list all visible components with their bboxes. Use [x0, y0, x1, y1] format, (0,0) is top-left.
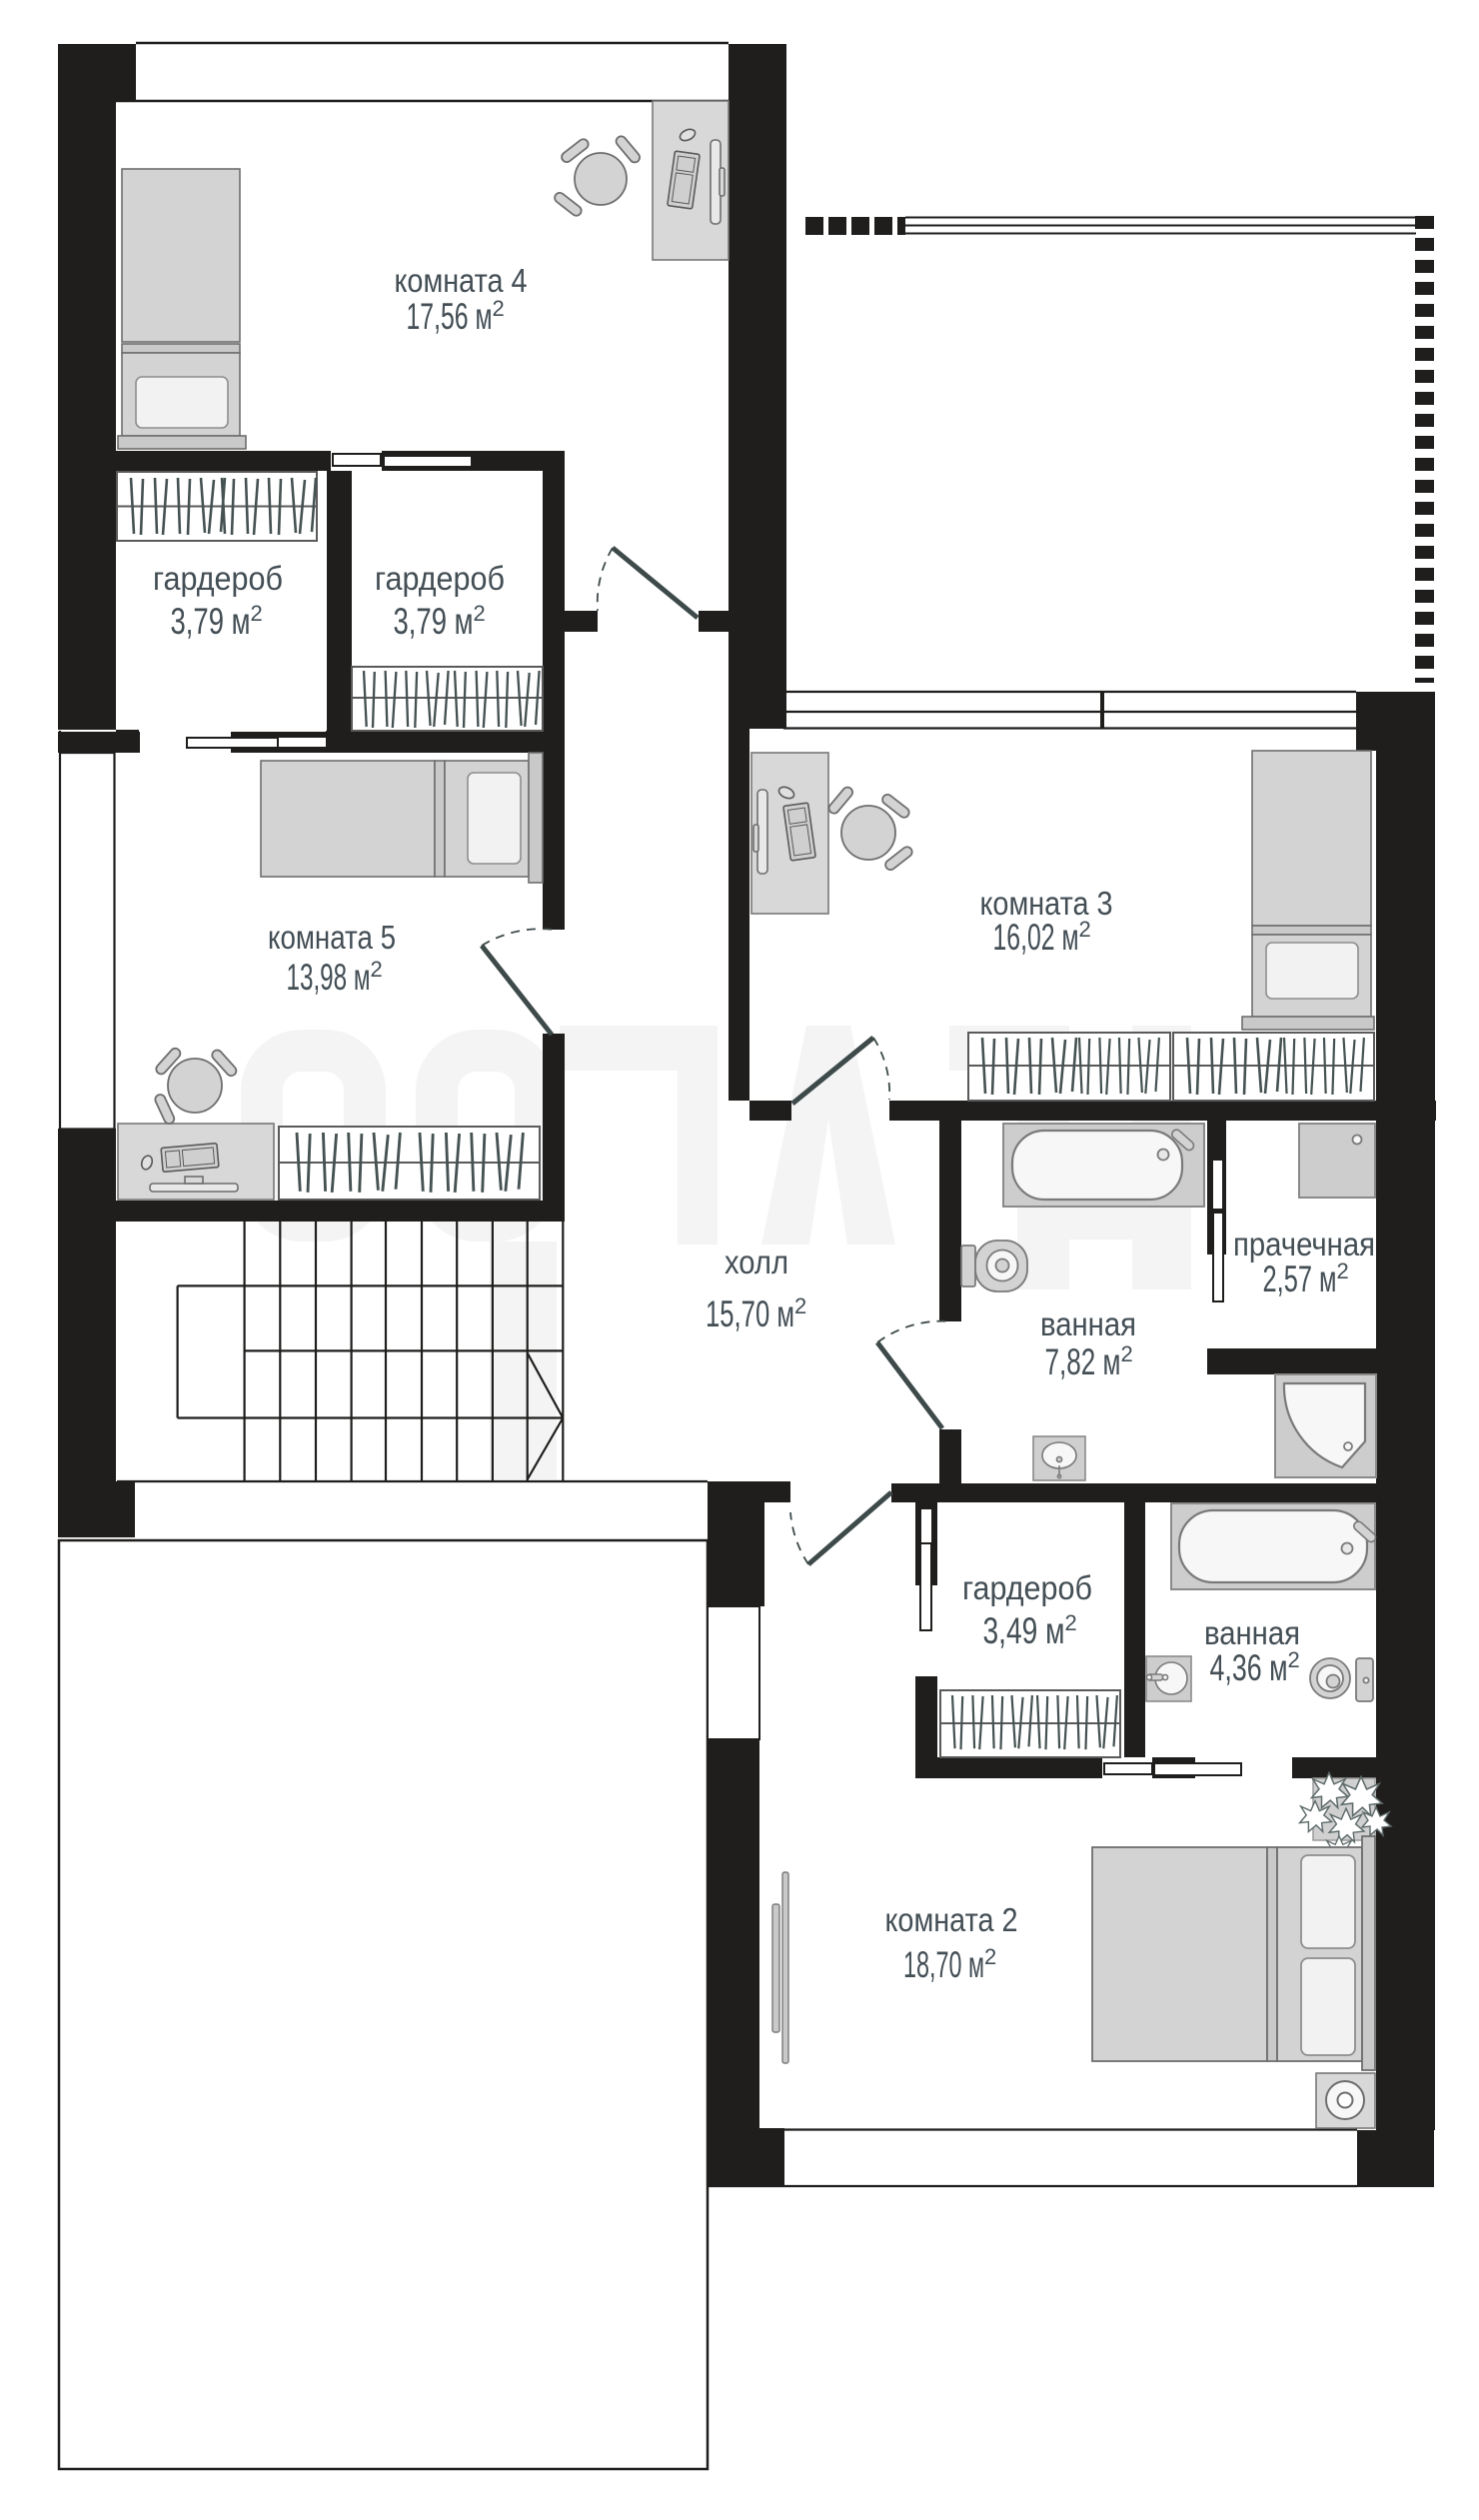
- svg-text:3,79 м2: 3,79 м2: [171, 601, 263, 642]
- svg-text:ванная: ванная: [1040, 1305, 1136, 1342]
- svg-text:гардероб: гардероб: [962, 1569, 1092, 1606]
- svg-text:ванная: ванная: [1204, 1614, 1300, 1651]
- svg-text:13,98 м2: 13,98 м2: [287, 957, 383, 998]
- svg-text:18,70 м2: 18,70 м2: [903, 1944, 996, 1985]
- svg-text:7,82 м2: 7,82 м2: [1045, 1341, 1133, 1382]
- svg-text:2,57 м2: 2,57 м2: [1263, 1259, 1349, 1299]
- svg-text:гардероб: гардероб: [375, 560, 505, 597]
- svg-text:4,36 м2: 4,36 м2: [1210, 1647, 1300, 1688]
- svg-text:комната 5: комната 5: [268, 919, 396, 956]
- svg-text:17,56 м2: 17,56 м2: [407, 296, 505, 337]
- svg-text:3,79 м2: 3,79 м2: [394, 601, 486, 642]
- svg-text:15,70 м2: 15,70 м2: [706, 1293, 806, 1334]
- svg-text:16,02 м2: 16,02 м2: [993, 917, 1091, 958]
- svg-text:гардероб: гардероб: [153, 560, 283, 597]
- svg-text:холл: холл: [725, 1244, 788, 1280]
- svg-text:прачечная: прачечная: [1233, 1226, 1375, 1262]
- svg-text:комната 4: комната 4: [395, 262, 528, 299]
- svg-text:3,49 м2: 3,49 м2: [983, 1610, 1077, 1651]
- svg-text:комната 2: комната 2: [885, 1901, 1018, 1938]
